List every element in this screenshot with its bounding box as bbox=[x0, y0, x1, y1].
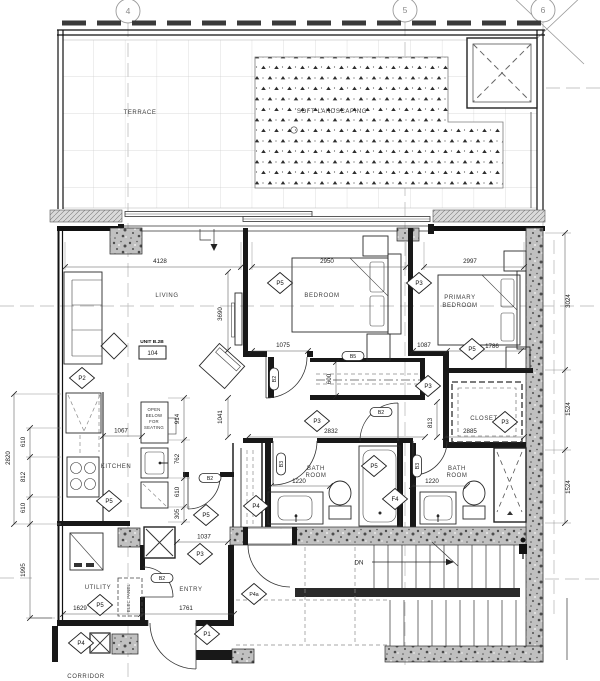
nightstand bbox=[363, 236, 388, 256]
dim-left-a: 610 bbox=[20, 436, 27, 447]
open-below-label-2: BELOW bbox=[146, 413, 163, 418]
terrace-wall-hatch-left bbox=[50, 210, 122, 222]
floor-plan-drawing: 4 5 6 TERRACE SOFT LANDSCAPING bbox=[0, 0, 600, 681]
pillow bbox=[501, 279, 514, 307]
dim-bedroom-width: 2950 bbox=[320, 258, 334, 265]
column bbox=[232, 649, 254, 663]
sliding-doors bbox=[125, 212, 430, 222]
living-furniture bbox=[64, 272, 245, 389]
dim-living-width: 4128 bbox=[153, 258, 167, 265]
svg-text:P4: P4 bbox=[252, 504, 260, 510]
svg-text:B2: B2 bbox=[207, 476, 213, 482]
tag-f4: F4 bbox=[383, 489, 408, 510]
dim-left-c: 610 bbox=[20, 502, 27, 513]
dim-vestibule: 813 bbox=[427, 417, 434, 428]
svg-text:P5: P5 bbox=[276, 281, 284, 287]
tag-b3: B3 bbox=[413, 455, 422, 477]
tag-p3: P3 bbox=[416, 376, 441, 397]
tag-p5: P5 bbox=[460, 339, 485, 360]
primary-furniture bbox=[438, 251, 530, 369]
dim-left-total: 2820 bbox=[5, 451, 12, 465]
dim-bed-door-r: 1087 bbox=[417, 342, 431, 349]
svg-text:P3: P3 bbox=[313, 419, 321, 425]
svg-text:P3: P3 bbox=[501, 420, 509, 426]
column bbox=[118, 528, 140, 547]
svg-text:F4: F4 bbox=[391, 497, 399, 503]
tag-p2: P2 bbox=[70, 368, 95, 389]
column bbox=[112, 634, 138, 654]
armchair bbox=[199, 343, 244, 388]
svg-text:B2: B2 bbox=[378, 410, 384, 416]
pillow bbox=[370, 262, 384, 292]
headboard bbox=[388, 254, 401, 334]
svg-text:P4a: P4a bbox=[249, 592, 258, 598]
kitchen-label: KITCHEN bbox=[101, 464, 132, 470]
svg-text:P3: P3 bbox=[415, 281, 423, 287]
stairs: DN bbox=[236, 542, 520, 646]
dim-hall-left: 1041 bbox=[217, 410, 224, 424]
dim-island-c: 610 bbox=[174, 486, 181, 497]
svg-text:P5: P5 bbox=[370, 464, 378, 470]
tag-b2: B2 bbox=[370, 408, 392, 417]
dim-left-lower: 1995 bbox=[20, 563, 27, 577]
svg-text:B5: B5 bbox=[350, 354, 356, 360]
svg-text:P5: P5 bbox=[96, 603, 104, 609]
column bbox=[110, 228, 142, 254]
side-table bbox=[101, 333, 127, 359]
dim-entry-a: 1629 bbox=[73, 605, 87, 612]
entry-door bbox=[150, 623, 196, 669]
svg-text:P5: P5 bbox=[468, 347, 476, 353]
nightstand bbox=[367, 334, 390, 360]
svg-text:B2: B2 bbox=[159, 576, 165, 582]
headboard bbox=[517, 271, 526, 349]
svg-text:B3: B3 bbox=[415, 463, 421, 469]
terrace: TERRACE SOFT LANDSCAPING bbox=[50, 23, 545, 222]
dim-closet-width: 2885 bbox=[463, 428, 477, 435]
dim-wardrobe: 600 bbox=[326, 373, 333, 384]
dim-living-height: 3690 bbox=[217, 307, 224, 321]
tv-console bbox=[235, 293, 242, 345]
dim-hall-width: 2832 bbox=[324, 428, 338, 435]
svg-text:B3: B3 bbox=[279, 461, 285, 467]
tag-b5: B5 bbox=[342, 352, 364, 361]
svg-text:P3: P3 bbox=[424, 384, 432, 390]
dim-entry-b: 1761 bbox=[179, 605, 193, 612]
unit-number: 104 bbox=[147, 350, 158, 357]
floor-plan-page: 4 5 6 TERRACE SOFT LANDSCAPING bbox=[0, 0, 600, 681]
primary-bedroom-label-2: BEDROOM bbox=[442, 303, 477, 309]
tag-p5: P5 bbox=[362, 456, 387, 477]
open-below-label-3: FOR bbox=[149, 419, 159, 424]
terrace-door-marker bbox=[200, 229, 218, 251]
tag-b2: B2 bbox=[270, 368, 279, 390]
fridge bbox=[66, 393, 101, 433]
living-label: LIVING bbox=[155, 293, 178, 299]
tag-p1: P1 bbox=[195, 624, 220, 645]
grid-bubble-6: 6 bbox=[541, 5, 546, 15]
dim-bath2: 1220 bbox=[425, 478, 439, 485]
tag-p5: P5 bbox=[88, 595, 113, 616]
toilet bbox=[329, 481, 351, 505]
stair-door bbox=[248, 545, 290, 587]
pillow bbox=[370, 296, 384, 326]
dim-bath1: 1220 bbox=[292, 478, 306, 485]
dim-right-bottom: 1524 bbox=[565, 480, 572, 494]
svg-text:P5: P5 bbox=[202, 513, 210, 519]
svg-text:B2: B2 bbox=[272, 376, 278, 382]
dim-bed-door-l: 1075 bbox=[276, 342, 290, 349]
unit-tag: UNIT B.2B 104 bbox=[139, 339, 166, 359]
bedroom-label: BEDROOM bbox=[304, 293, 339, 299]
entry-label: ENTRY bbox=[179, 587, 202, 593]
tag-b3: B3 bbox=[277, 453, 286, 475]
utility-label: UTILITY bbox=[85, 585, 112, 591]
open-below-label-4: SEATING bbox=[144, 425, 164, 430]
dim-island-d: 305 bbox=[174, 508, 181, 519]
dim-right-mid: 1524 bbox=[565, 402, 572, 416]
dim-kitchen-clear: 1067 bbox=[114, 428, 128, 435]
svg-text:P5: P5 bbox=[105, 499, 113, 505]
svg-text:P2: P2 bbox=[78, 376, 86, 382]
elec-panel-label: ELEC PANEL bbox=[126, 584, 131, 613]
dim-primary-door: 1786 bbox=[485, 343, 499, 350]
tv bbox=[232, 303, 235, 337]
walls bbox=[30, 224, 567, 663]
unit-name: UNIT B.2B bbox=[140, 339, 164, 345]
concrete-wall-bottom bbox=[385, 646, 543, 662]
pillow bbox=[501, 313, 514, 341]
soft-landscaping-label: SOFT LANDSCAPING bbox=[297, 109, 367, 115]
tag-p4a: P4a bbox=[242, 584, 267, 605]
tag-b2: B2 bbox=[199, 474, 221, 483]
bath1-label-1: BATH bbox=[307, 466, 325, 472]
primary-bedroom-label-1: PRIMARY bbox=[444, 295, 475, 301]
skylight bbox=[467, 38, 537, 108]
tag-p3: P3 bbox=[188, 544, 213, 565]
tag-b2: B2 bbox=[151, 574, 173, 583]
dim-right-top: 3024 bbox=[565, 294, 572, 308]
dim-entry-c: 1037 bbox=[197, 534, 211, 541]
bath2-label-2: ROOM bbox=[446, 473, 467, 479]
grid-bubble-4: 4 bbox=[126, 6, 131, 16]
stove bbox=[67, 457, 99, 497]
bath1-label-2: ROOM bbox=[305, 473, 326, 479]
dim-island-a: 914 bbox=[174, 413, 181, 424]
stairs-down-label: DN bbox=[355, 560, 364, 567]
bath2-label-1: BATH bbox=[448, 466, 466, 472]
svg-text:P1: P1 bbox=[203, 632, 211, 638]
open-below-label-1: OPEN bbox=[148, 407, 161, 412]
svg-text:P3: P3 bbox=[196, 552, 204, 558]
dim-island-b: 762 bbox=[174, 453, 181, 464]
shower bbox=[494, 448, 526, 522]
tag-p3: P3 bbox=[493, 412, 518, 433]
corridor-label: CORRIDOR bbox=[67, 674, 105, 680]
toilet bbox=[463, 481, 485, 505]
terrace-label: TERRACE bbox=[124, 110, 157, 116]
stair-landing-rail bbox=[295, 588, 520, 597]
dim-left-b: 812 bbox=[20, 471, 27, 482]
tag-p5: P5 bbox=[97, 491, 122, 512]
terrace-wall-hatch-right bbox=[433, 210, 545, 222]
dimensions: 4128 2950 2997 3690 3024 1524 1524 2820 … bbox=[5, 230, 572, 621]
grid-bubble-5: 5 bbox=[403, 5, 408, 15]
concrete-wall-right bbox=[526, 228, 543, 662]
tag-p5: P5 bbox=[268, 273, 293, 294]
shaft bbox=[144, 527, 175, 558]
svg-text:P4: P4 bbox=[77, 641, 85, 647]
dim-primary-width: 2997 bbox=[463, 258, 477, 265]
